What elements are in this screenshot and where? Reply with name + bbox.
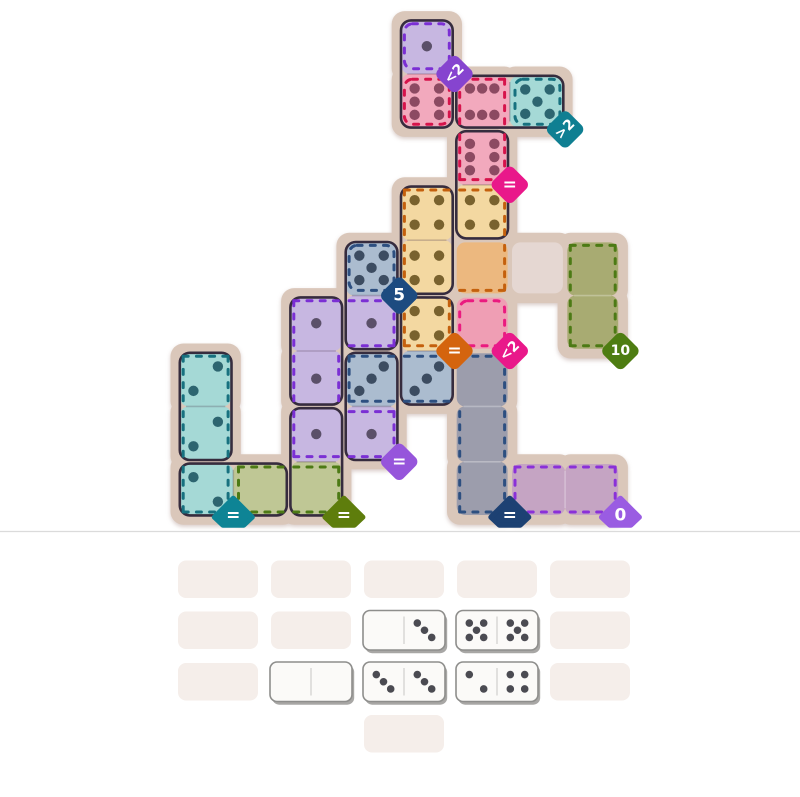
pip [544, 84, 554, 94]
board-cell-filled[interactable] [180, 353, 231, 406]
pip [480, 685, 488, 693]
badge-label: = [447, 341, 461, 361]
pip [514, 626, 522, 634]
pip [414, 619, 422, 627]
game-canvas: <2=>2=5=<210===0 [0, 0, 800, 793]
pip [409, 250, 419, 260]
pip [507, 685, 515, 693]
badge-label: = [503, 506, 517, 526]
tray-slot[interactable] [364, 715, 444, 753]
tray-slot[interactable] [550, 612, 630, 650]
pip [213, 361, 223, 371]
pip [409, 83, 419, 93]
board-cell-filled[interactable] [401, 187, 452, 240]
pip [409, 386, 419, 396]
pip [477, 83, 487, 93]
pip [521, 671, 529, 679]
tray-domino[interactable] [456, 611, 540, 654]
pip [366, 373, 376, 383]
pip [466, 671, 474, 679]
pip [434, 306, 444, 316]
pip [311, 373, 321, 383]
pip [428, 685, 436, 693]
pip [465, 219, 475, 229]
tray-slot[interactable] [178, 561, 258, 599]
badge-label: = [337, 506, 351, 526]
pip [421, 678, 429, 686]
pip [434, 110, 444, 120]
pip [489, 83, 499, 93]
pip [409, 195, 419, 205]
pip [422, 373, 432, 383]
pip [422, 41, 432, 51]
pip [434, 275, 444, 285]
pip [366, 429, 376, 439]
tray-domino[interactable] [363, 611, 447, 654]
pip [366, 318, 376, 328]
pip [489, 152, 499, 162]
pip [489, 139, 499, 149]
pip [409, 275, 419, 285]
pip [354, 250, 364, 260]
board-cell-empty[interactable] [512, 242, 563, 293]
pip [465, 83, 475, 93]
pip [354, 275, 364, 285]
pip [521, 619, 529, 627]
pip [213, 417, 223, 427]
board-cell-empty[interactable] [457, 242, 508, 293]
badge-label: = [503, 175, 517, 195]
badge-label: = [392, 452, 406, 472]
pip [387, 685, 395, 693]
pip [409, 219, 419, 229]
badge-label: 5 [393, 286, 405, 306]
pip [434, 361, 444, 371]
pip [188, 386, 198, 396]
pip [465, 152, 475, 162]
tray-slot[interactable] [271, 612, 351, 650]
pip [188, 441, 198, 451]
board-cell-filled[interactable] [180, 406, 231, 459]
pip [414, 671, 422, 679]
board-cell-empty[interactable] [567, 242, 618, 295]
pip [409, 306, 419, 316]
tray-slot[interactable] [271, 561, 351, 599]
pip [489, 219, 499, 229]
pip [520, 84, 530, 94]
pip [434, 195, 444, 205]
domino-puzzle-scene: <2=>2=5=<210===0 [0, 0, 800, 793]
pip [532, 96, 542, 106]
pip [434, 330, 444, 340]
pip [520, 109, 530, 119]
pip [477, 110, 487, 120]
pip [409, 330, 419, 340]
pip [373, 671, 381, 679]
pip [379, 361, 389, 371]
pip [434, 96, 444, 106]
tray-slot[interactable] [457, 561, 537, 599]
tray-slot[interactable] [550, 663, 630, 701]
pip [507, 619, 515, 627]
pip [507, 634, 515, 642]
pip [521, 685, 529, 693]
badge-label: 0 [614, 506, 626, 526]
pip [465, 139, 475, 149]
tray-domino[interactable] [363, 662, 447, 705]
pip [311, 429, 321, 439]
tray-domino[interactable] [456, 662, 540, 705]
pip [409, 96, 419, 106]
tray-slot[interactable] [178, 663, 258, 701]
pip [544, 109, 554, 119]
pip [480, 619, 488, 627]
pip [473, 626, 481, 634]
tray-slot[interactable] [178, 612, 258, 650]
tray-slot[interactable] [364, 561, 444, 599]
pip [465, 110, 475, 120]
pip [188, 472, 198, 482]
pip [489, 110, 499, 120]
pip [379, 250, 389, 260]
pip [480, 634, 488, 642]
pip [465, 195, 475, 205]
pip [366, 263, 376, 273]
pip [489, 195, 499, 205]
pip [507, 671, 515, 679]
pip [434, 219, 444, 229]
pip [434, 250, 444, 260]
badge-label: 10 [611, 343, 631, 359]
pip [421, 626, 429, 634]
board-cell-empty[interactable] [457, 406, 508, 462]
pip [465, 165, 475, 175]
pip [354, 386, 364, 396]
pip [428, 634, 436, 642]
pip [379, 275, 389, 285]
badge-label: = [226, 506, 240, 526]
pip [466, 634, 474, 642]
pip [380, 678, 388, 686]
pip [434, 83, 444, 93]
pip [466, 619, 474, 627]
pip [409, 110, 419, 120]
tray-domino[interactable] [270, 662, 354, 705]
pip [489, 165, 499, 175]
pip [521, 634, 529, 642]
pip [311, 318, 321, 328]
pip [213, 496, 223, 506]
tray-slot[interactable] [550, 561, 630, 599]
